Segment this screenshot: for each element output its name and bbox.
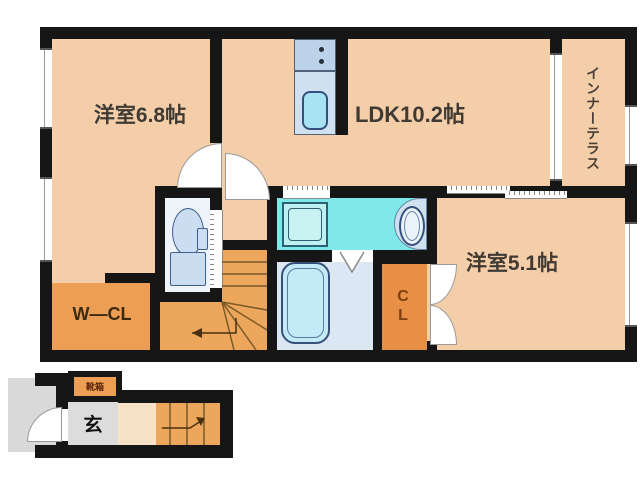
wcl-label: W―CL: [58, 302, 146, 326]
wall-segment: [56, 373, 68, 409]
wall-segment: [40, 27, 637, 39]
hall-floor: [118, 403, 156, 445]
bathroom-door-gap: [332, 250, 373, 262]
terrace-label: インナーテラス: [580, 48, 606, 188]
kitchen-sink: [302, 91, 328, 130]
stove-burners: [294, 39, 336, 71]
wall-segment: [373, 250, 382, 350]
wall-segment: [267, 250, 332, 262]
toilet-sliding-door: [210, 210, 223, 288]
wall-segment: [105, 273, 160, 283]
wall-segment: [56, 441, 68, 458]
cl-label: CL: [395, 284, 411, 328]
wall-segment: [155, 292, 222, 302]
wall-segment: [373, 250, 427, 264]
room51-sliding-door: [447, 186, 510, 194]
window: [625, 222, 637, 327]
washing-machine-pan: [282, 202, 328, 247]
room51-label: 洋室5.1帖: [432, 248, 592, 276]
terrace-window: [550, 53, 562, 181]
wall-segment: [210, 39, 222, 143]
washroom-sliding-door: [283, 186, 330, 199]
window: [625, 105, 637, 166]
wall-segment: [40, 350, 637, 362]
ldk-label: LDK10.2帖: [330, 98, 490, 128]
wall-segment: [267, 198, 277, 350]
bathtub: [281, 262, 330, 344]
toilet-tank: [170, 252, 206, 286]
genkan-label: 玄: [68, 410, 118, 436]
shoebox-label: 靴箱: [74, 378, 116, 394]
toilet-handle: [197, 228, 208, 250]
window: [40, 177, 52, 262]
room51-sliding-door: [505, 191, 567, 199]
room68-label: 洋室6.8帖: [70, 100, 210, 128]
stairs-1f: [156, 403, 220, 445]
window: [40, 48, 52, 129]
floor-plan: 洋室6.8帖 LDK10.2帖 インナーテラス 洋室5.1帖 W―CL CL 玄…: [0, 0, 640, 480]
stairs-upper-flight: [222, 250, 267, 302]
stairs-winder: [160, 302, 267, 350]
wall-segment: [210, 186, 222, 212]
wall-segment: [118, 390, 233, 403]
wall-segment: [150, 283, 160, 350]
wash-basin: [399, 206, 425, 246]
